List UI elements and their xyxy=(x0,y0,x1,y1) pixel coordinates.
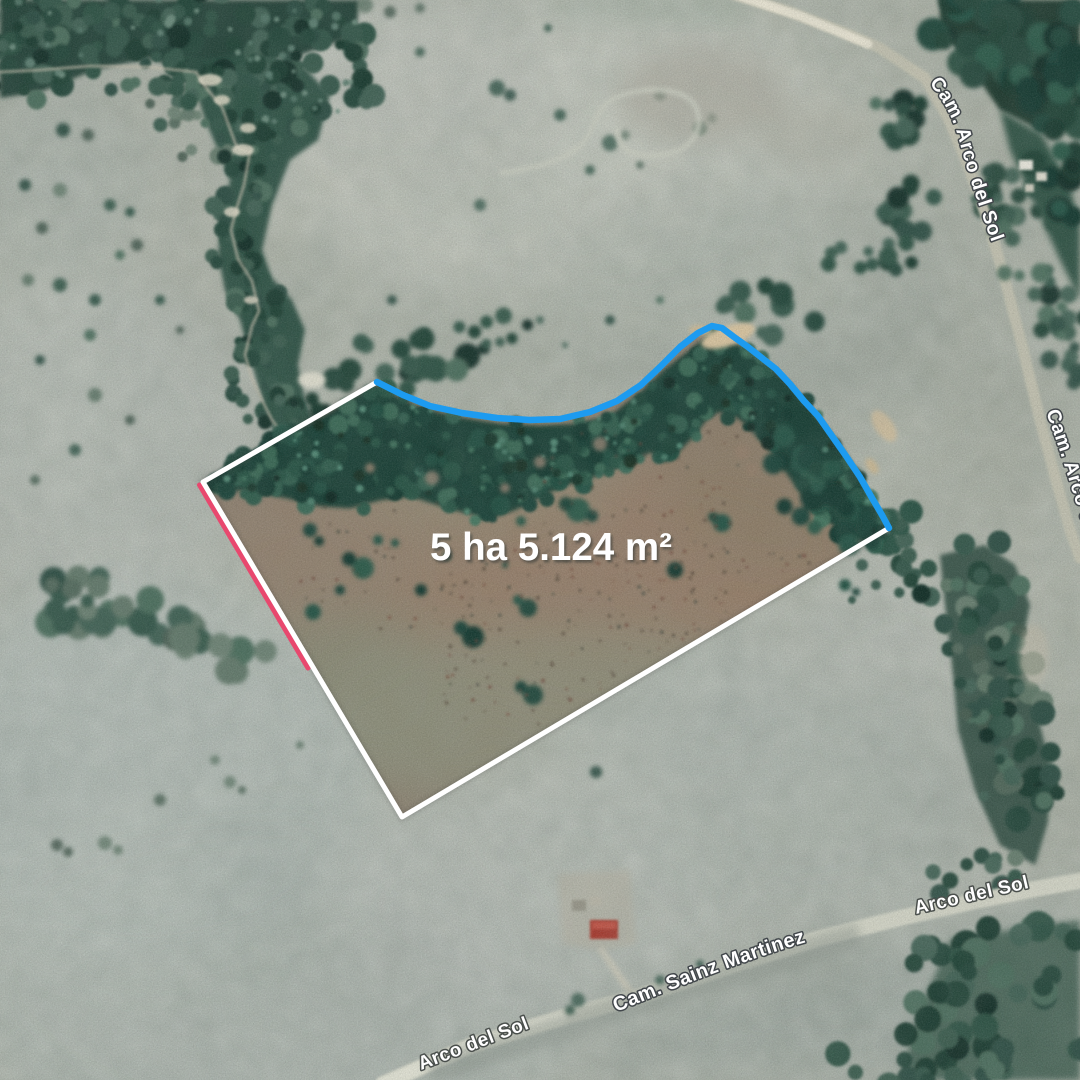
svg-text:5 ha 5.124 m²: 5 ha 5.124 m² xyxy=(430,526,672,569)
